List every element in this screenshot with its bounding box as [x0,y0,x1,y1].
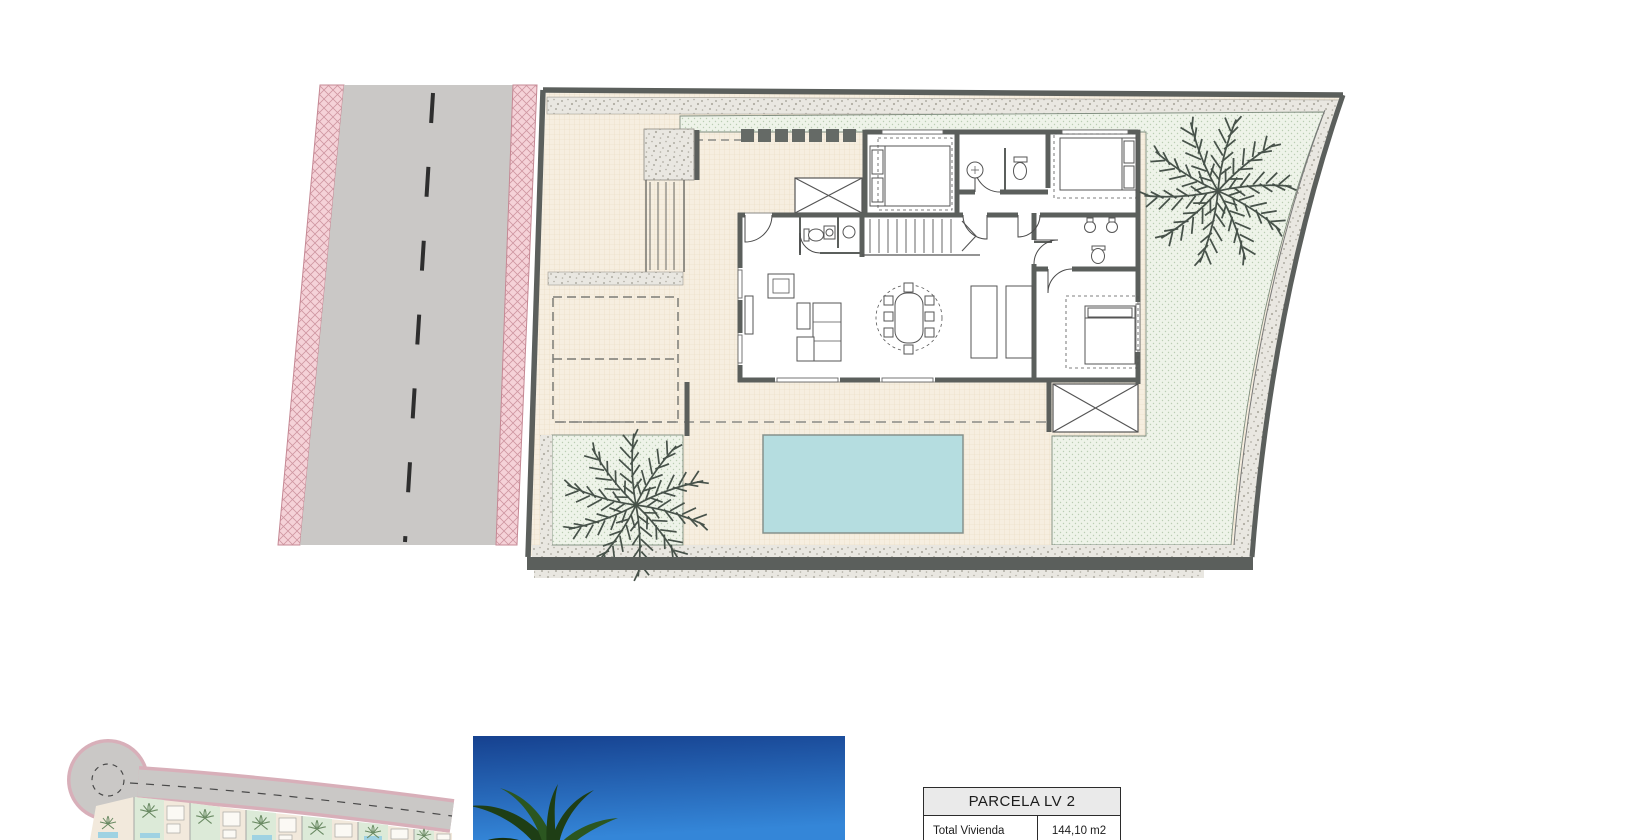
parcel-table-row-value: 144,10 m2 [1038,816,1120,840]
gravel-strip-left [540,435,552,545]
mini-site-map [67,739,452,840]
storage-x-icon [795,178,862,213]
site-plan-canvas [0,0,1638,840]
swimming-pool [763,435,963,533]
kitchen-counter [1006,286,1032,358]
gravel-planter [644,129,694,180]
tv-unit [745,296,753,334]
photo-render [470,736,845,840]
gravel-strip-bottom-outer [534,570,1204,578]
gravel-strip-entry [548,272,683,285]
access-road [278,85,537,545]
parcel-table-header: PARCELA LV 2 [923,787,1121,816]
side-table [797,303,810,329]
pergola-slats [741,129,856,142]
armchair [768,274,794,298]
parcel-table-row-label: Total Vivienda [924,816,1038,840]
parcel-table: PARCELA LV 2 Total Vivienda 144,10 m2 [923,787,1121,840]
storage-x-icon [1053,384,1138,432]
bed [1054,134,1136,198]
bed [870,138,952,210]
kitchen-island [971,286,997,358]
plan-sheet: PARCELA LV 2 Total Vivienda 144,10 m2 [0,0,1638,840]
table-row: Total Vivienda 144,10 m2 [923,816,1121,840]
gravel-band-top [547,97,1339,114]
